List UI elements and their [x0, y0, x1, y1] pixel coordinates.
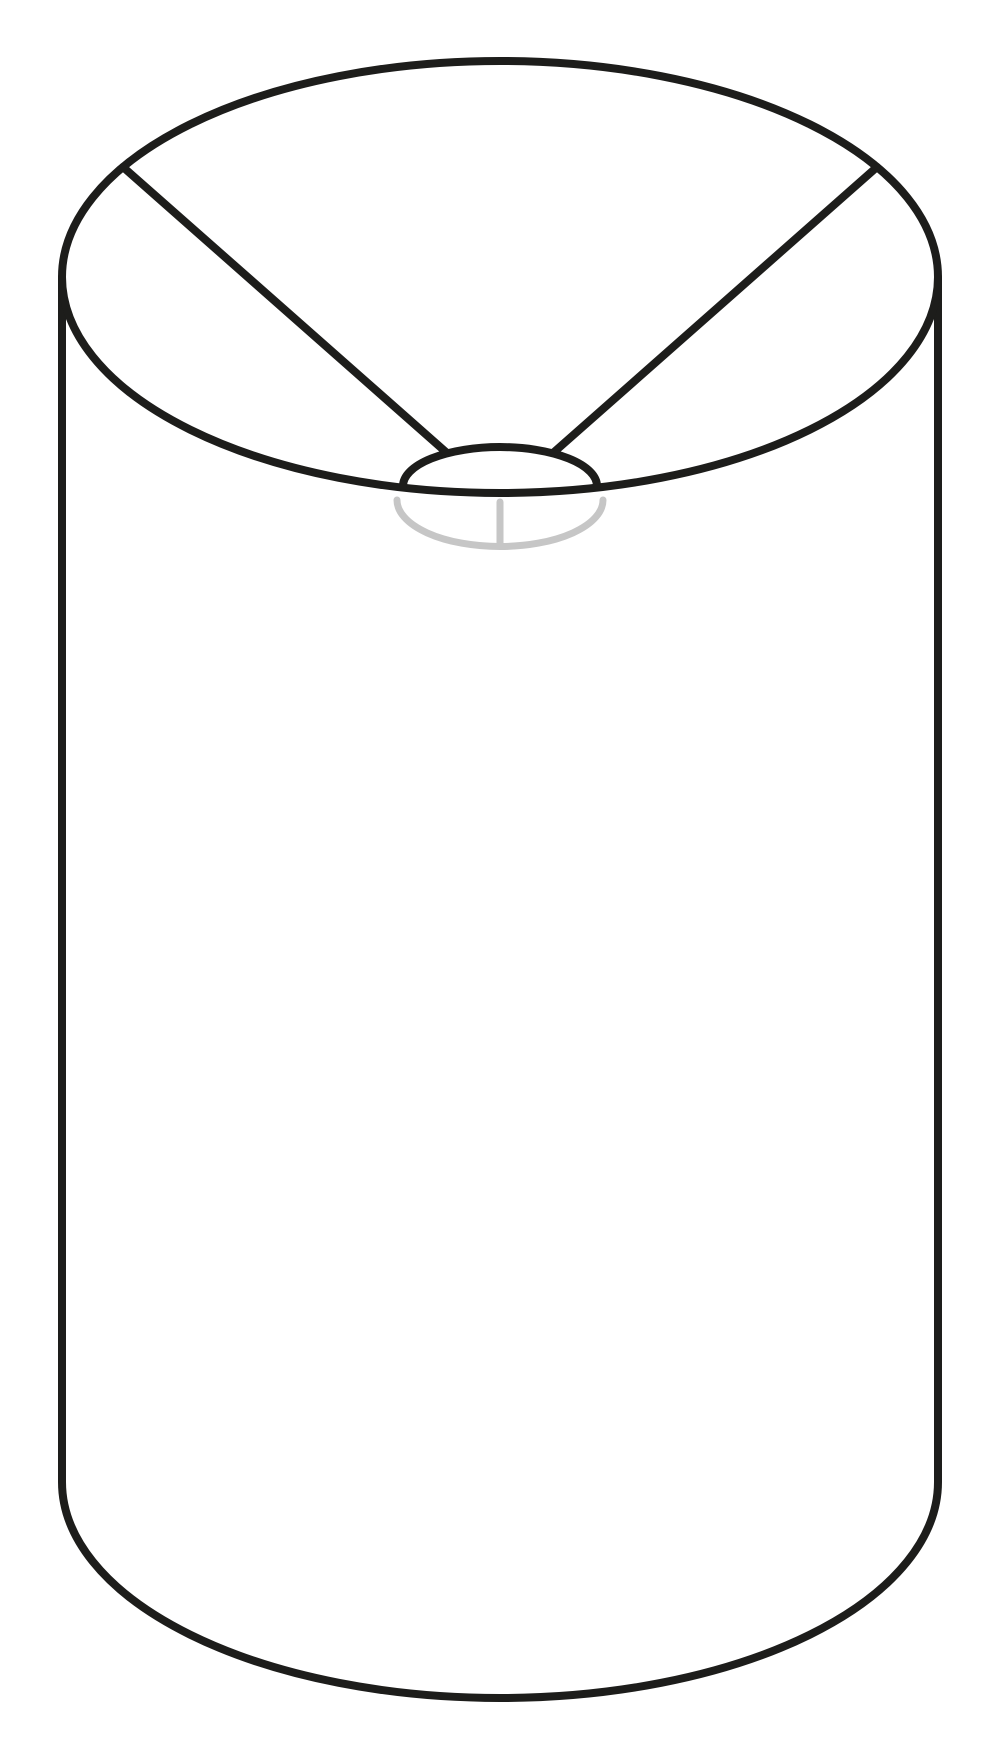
- lampshade-illustration: [0, 0, 1000, 1764]
- right-spoke-line: [553, 167, 877, 453]
- lampshade-drawing: [0, 0, 1000, 1764]
- hidden-geometry-group: [397, 500, 603, 547]
- top-rim-ellipse: [62, 61, 938, 493]
- left-spoke-line: [123, 167, 447, 453]
- outline-geometry-group: [62, 61, 938, 1698]
- fitter-ring-arc: [403, 447, 597, 486]
